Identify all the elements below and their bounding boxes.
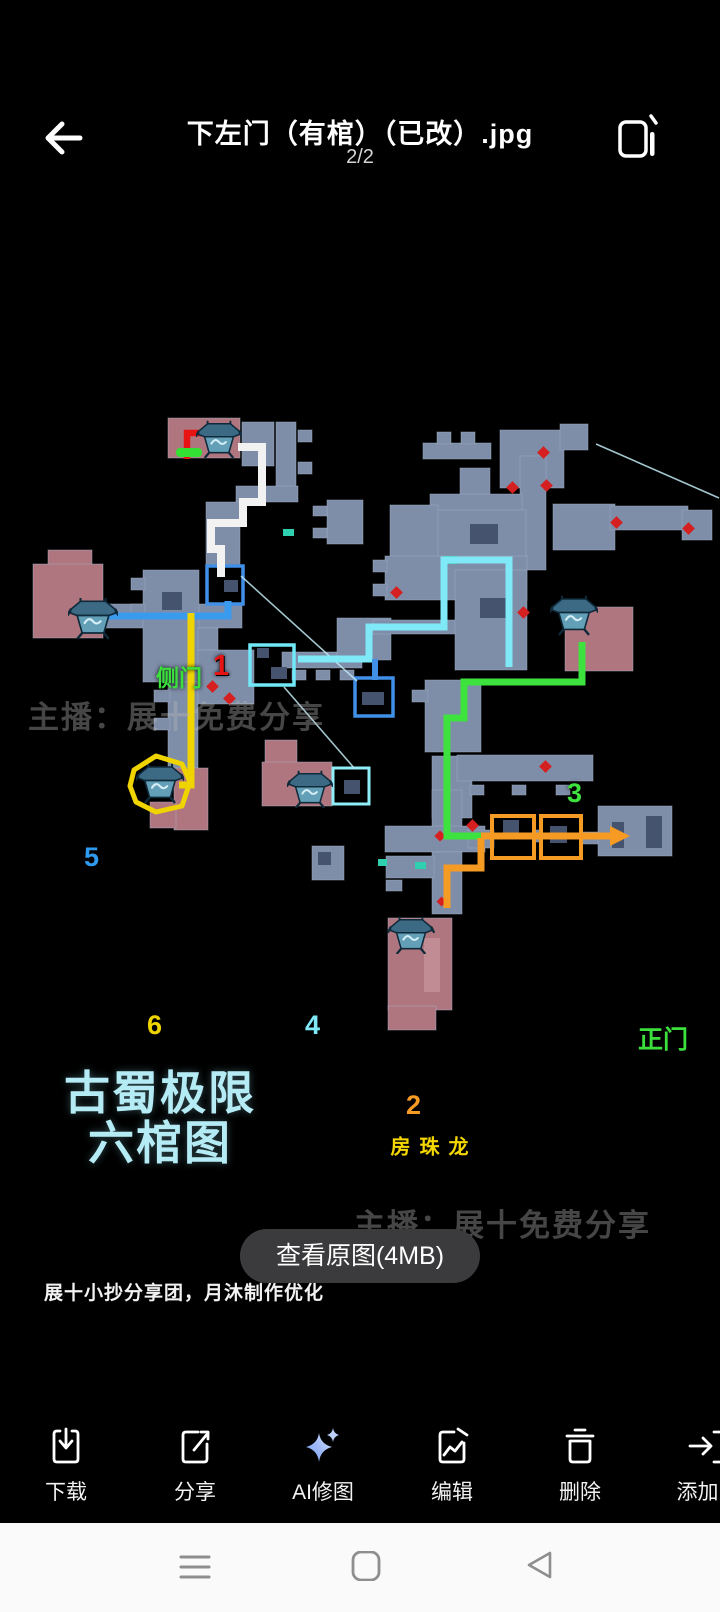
toolbar-item-add-to[interactable]: 添加到	[653, 1424, 720, 1506]
map-image[interactable]: 主播：展十免费分享 主播：展十免费分享 展十小抄分享团，月沐制作优化 古蜀极限 …	[0, 200, 720, 1100]
side-door-green-bar	[176, 448, 202, 457]
marker-3: 3	[567, 778, 582, 809]
marker-1: 1	[213, 650, 229, 683]
home-icon	[351, 1551, 381, 1581]
marker-4: 4	[305, 1010, 320, 1041]
back-triangle-icon	[526, 1551, 554, 1579]
gallery-viewer-screen: 下左门（有棺）（已改）.jpg 2/2	[0, 0, 720, 1612]
nav-home-button[interactable]	[351, 1551, 381, 1586]
toolbar-item-ai-retouch[interactable]: AI修图	[268, 1424, 378, 1506]
nav-back-button[interactable]	[526, 1551, 554, 1584]
trash-icon	[558, 1424, 602, 1470]
dragon-pearl-room-label: 龙珠房	[384, 1136, 471, 1159]
watermark-top: 主播：展十免费分享	[28, 692, 325, 737]
ai-sparkle-icon	[301, 1424, 345, 1470]
toolbar-label: AI修图	[268, 1476, 378, 1506]
side-door-label: 侧门	[156, 659, 202, 693]
toolbar-label: 删除	[525, 1476, 635, 1506]
nav-menu-button[interactable]	[179, 1551, 211, 1586]
toolbar-label: 分享	[140, 1476, 250, 1506]
float-window-button[interactable]	[610, 108, 666, 166]
map-title: 古蜀极限 六棺图	[50, 1068, 270, 1168]
toolbar-item-share[interactable]: 分享	[140, 1424, 250, 1506]
edit-image-icon	[430, 1424, 474, 1470]
toolbar-item-download[interactable]: 下载	[11, 1424, 121, 1506]
toolbar-label: 下载	[11, 1476, 121, 1506]
marker-6: 6	[147, 1010, 162, 1041]
add-to-icon	[686, 1424, 720, 1470]
menu-icon	[179, 1551, 211, 1581]
map-graphic	[0, 200, 720, 1100]
view-original-button[interactable]: 查看原图(4MB)	[240, 1229, 480, 1283]
toolbar-item-edit[interactable]: 编辑	[397, 1424, 507, 1506]
marker-2: 2	[406, 1090, 421, 1121]
main-door-label: 正门	[638, 1020, 688, 1056]
map-title-line1: 古蜀极限	[50, 1068, 270, 1118]
toolbar-label: 添加到	[653, 1476, 720, 1506]
marker-5: 5	[84, 842, 99, 873]
toolbar-item-delete[interactable]: 删除	[525, 1424, 635, 1506]
share-icon	[173, 1424, 217, 1470]
map-title-line2: 六棺图	[50, 1118, 270, 1168]
system-navbar	[0, 1523, 720, 1612]
download-icon	[44, 1424, 88, 1470]
toolbar-label: 编辑	[397, 1476, 507, 1506]
float-window-icon	[610, 108, 666, 166]
